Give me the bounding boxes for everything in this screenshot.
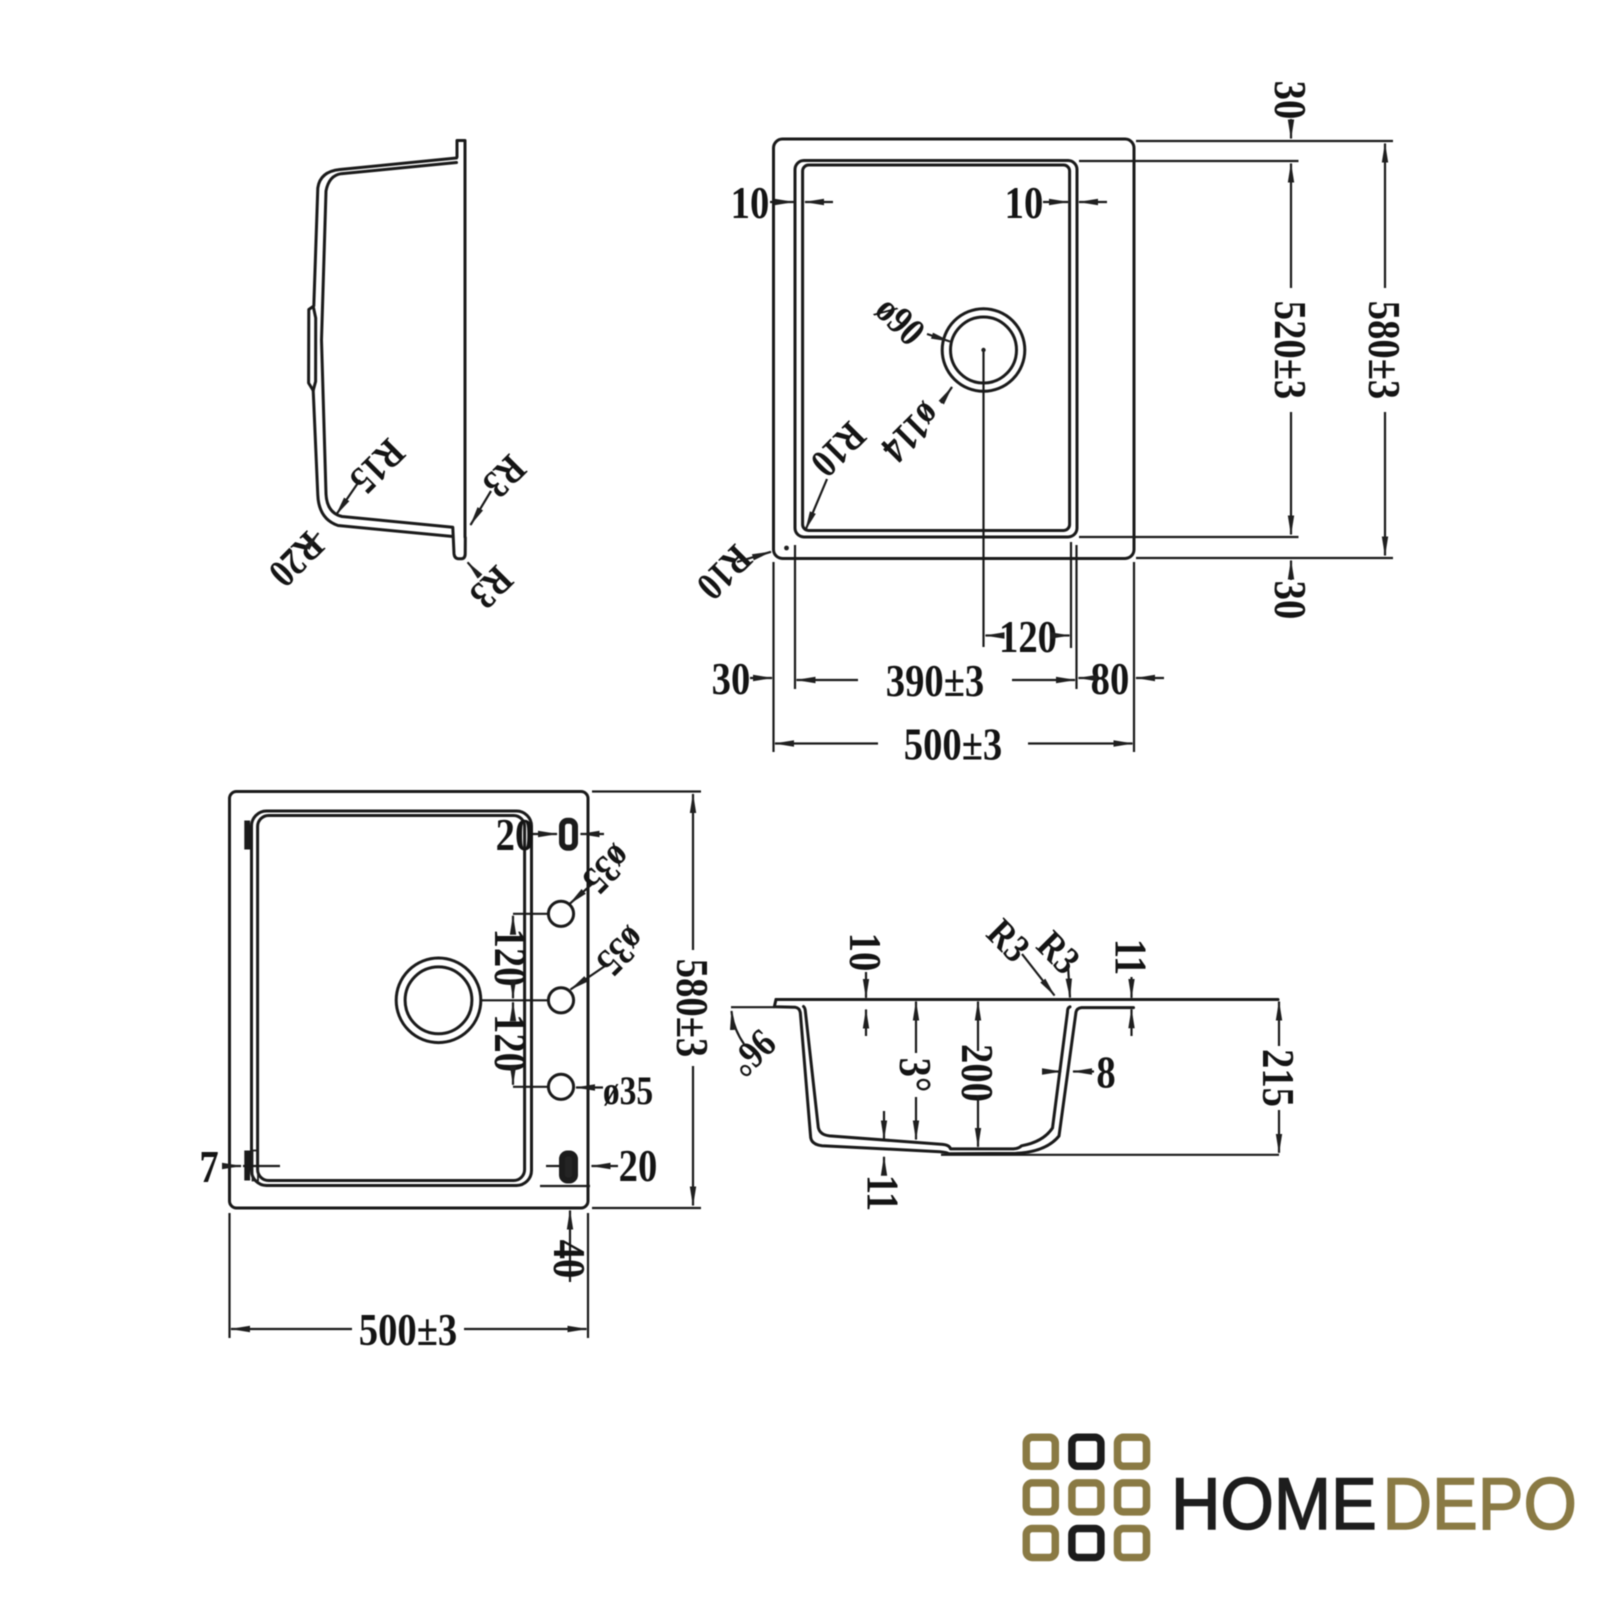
- svg-text:30: 30: [712, 654, 751, 705]
- svg-text:120: 120: [999, 612, 1057, 663]
- svg-text:3°: 3°: [889, 1058, 940, 1093]
- svg-text:10: 10: [839, 933, 890, 972]
- svg-text:40: 40: [543, 1240, 594, 1279]
- svg-text:10: 10: [731, 178, 770, 229]
- svg-text:ø35: ø35: [603, 1068, 653, 1112]
- svg-text:7: 7: [199, 1142, 218, 1193]
- svg-text:580±3: 580±3: [666, 959, 717, 1057]
- svg-text:30: 30: [1264, 581, 1315, 620]
- svg-text:11: 11: [1105, 939, 1156, 976]
- svg-text:20: 20: [619, 1141, 658, 1192]
- svg-text:80: 80: [1091, 654, 1130, 705]
- svg-text:8: 8: [1096, 1048, 1115, 1099]
- svg-text:215: 215: [1252, 1049, 1303, 1107]
- svg-text:500±3: 500±3: [359, 1305, 457, 1356]
- svg-text:500±3: 500±3: [904, 720, 1002, 771]
- svg-text:30: 30: [1264, 81, 1315, 120]
- svg-text:520±3: 520±3: [1264, 301, 1315, 399]
- svg-text:580±3: 580±3: [1358, 301, 1409, 399]
- svg-text:11: 11: [857, 1175, 908, 1212]
- svg-text:120: 120: [484, 1014, 535, 1072]
- svg-text:HOMEDEPO: HOMEDEPO: [1171, 1464, 1577, 1545]
- svg-text:20: 20: [496, 810, 535, 861]
- svg-text:10: 10: [1005, 178, 1044, 229]
- svg-text:120: 120: [484, 929, 535, 987]
- svg-text:390±3: 390±3: [886, 656, 984, 707]
- svg-text:200: 200: [951, 1044, 1002, 1102]
